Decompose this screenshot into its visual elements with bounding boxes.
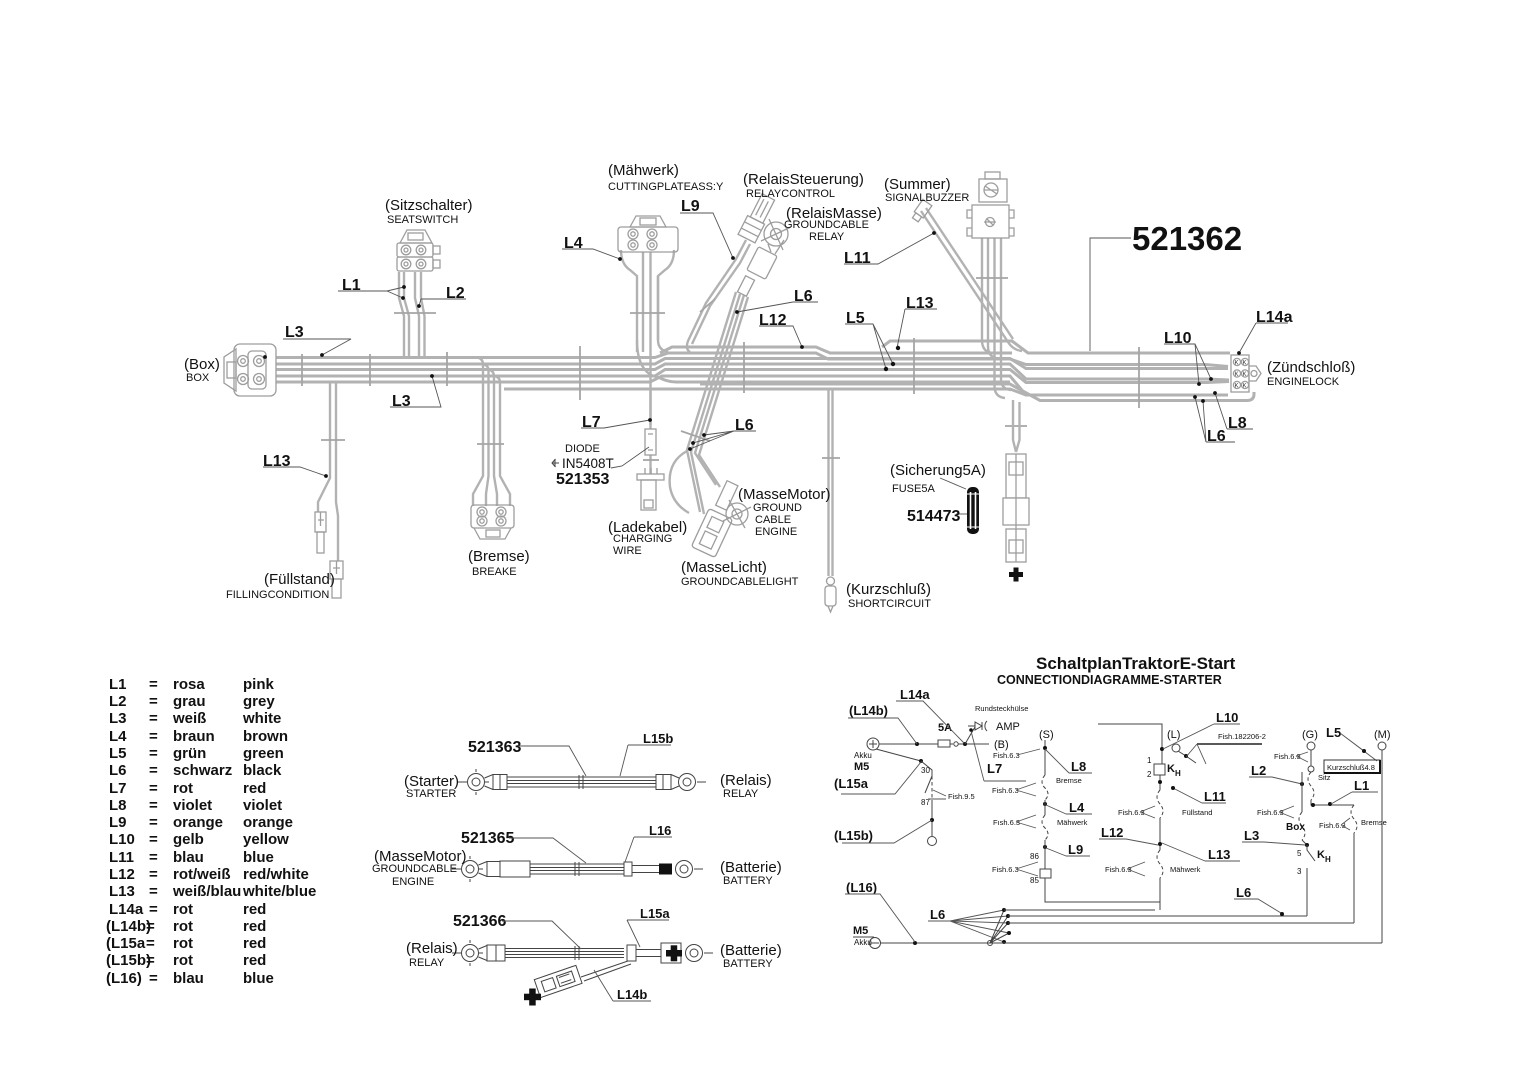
svg-text:Mähwerk: Mähwerk bbox=[1170, 865, 1201, 874]
svg-text:GROUND: GROUND bbox=[753, 502, 802, 514]
svg-text:521362: 521362 bbox=[1132, 220, 1242, 257]
svg-text:(Bremse): (Bremse) bbox=[468, 548, 530, 565]
svg-text:Kurzschluß4.8: Kurzschluß4.8 bbox=[1327, 763, 1375, 772]
svg-text:grey: grey bbox=[243, 693, 275, 710]
svg-text:(Sitzschalter): (Sitzschalter) bbox=[385, 197, 473, 214]
svg-text:(L15b): (L15b) bbox=[106, 952, 151, 969]
svg-text:514473: 514473 bbox=[907, 508, 960, 525]
svg-text:L12: L12 bbox=[1101, 825, 1123, 840]
svg-text:grün: grün bbox=[173, 745, 206, 762]
svg-text:Bremse: Bremse bbox=[1361, 818, 1387, 827]
svg-text:L14a: L14a bbox=[900, 687, 930, 702]
svg-text:(RelaisSteuerung): (RelaisSteuerung) bbox=[743, 171, 864, 188]
svg-text:L7: L7 bbox=[987, 761, 1002, 776]
svg-text:(L14b): (L14b) bbox=[106, 918, 151, 935]
svg-text:L11: L11 bbox=[1204, 789, 1226, 804]
svg-text:L6: L6 bbox=[1236, 885, 1251, 900]
svg-text:(Zündschloß): (Zündschloß) bbox=[1267, 359, 1355, 376]
svg-text:L13: L13 bbox=[906, 295, 934, 312]
svg-text:L11: L11 bbox=[844, 250, 871, 267]
svg-text:L13: L13 bbox=[263, 453, 291, 470]
svg-text:SchaltplanTraktorE-Start: SchaltplanTraktorE-Start bbox=[1036, 654, 1236, 673]
svg-text:blue: blue bbox=[243, 970, 274, 987]
svg-text:=: = bbox=[149, 831, 158, 848]
svg-text:(Relais): (Relais) bbox=[406, 940, 458, 957]
svg-text:L12: L12 bbox=[109, 866, 135, 883]
svg-text:RELAY: RELAY bbox=[409, 957, 445, 969]
svg-text:L5: L5 bbox=[846, 310, 865, 327]
svg-text:(L): (L) bbox=[1167, 729, 1180, 741]
svg-text:L7: L7 bbox=[109, 780, 127, 797]
svg-text:ENGINELOCK: ENGINELOCK bbox=[1267, 376, 1340, 388]
svg-text:K: K bbox=[1235, 384, 1239, 390]
svg-text:L4: L4 bbox=[109, 728, 127, 745]
svg-text:(Batterie): (Batterie) bbox=[720, 859, 782, 876]
svg-text:RELAY: RELAY bbox=[809, 231, 845, 243]
svg-text:=: = bbox=[149, 866, 158, 883]
svg-text:Fish.182206-2: Fish.182206-2 bbox=[1218, 732, 1266, 741]
svg-text:Fish.6.3: Fish.6.3 bbox=[992, 865, 1019, 874]
svg-text:WIRE: WIRE bbox=[613, 545, 642, 557]
svg-text:=: = bbox=[146, 952, 155, 969]
svg-text:L3: L3 bbox=[109, 710, 127, 727]
svg-text:schwarz: schwarz bbox=[173, 762, 232, 779]
svg-text:CONNECTIONDIAGRAMME-STARTER: CONNECTIONDIAGRAMME-STARTER bbox=[997, 673, 1222, 687]
svg-text:(S): (S) bbox=[1039, 729, 1054, 741]
svg-text:K: K bbox=[1235, 372, 1239, 378]
svg-text:SEATSWITCH: SEATSWITCH bbox=[387, 214, 458, 226]
svg-text:=: = bbox=[149, 814, 158, 831]
svg-text:rot: rot bbox=[173, 780, 193, 797]
svg-text:(Batterie): (Batterie) bbox=[720, 942, 782, 959]
svg-text:violet: violet bbox=[173, 797, 212, 814]
svg-text:L15a: L15a bbox=[640, 906, 670, 921]
svg-text:yellow: yellow bbox=[243, 831, 289, 848]
svg-text:5: 5 bbox=[1297, 849, 1302, 858]
svg-text:Fısh.6.3: Fısh.6.3 bbox=[993, 818, 1020, 827]
svg-text:white/blue: white/blue bbox=[242, 883, 316, 900]
svg-text:=: = bbox=[149, 762, 158, 779]
svg-text:=: = bbox=[149, 745, 158, 762]
svg-text:CUTTINGPLATEASS:Y: CUTTINGPLATEASS:Y bbox=[608, 181, 724, 193]
svg-text:(MasseMotor): (MasseMotor) bbox=[738, 486, 831, 503]
svg-text:=: = bbox=[146, 918, 155, 935]
svg-text:(Sicherung5A): (Sicherung5A) bbox=[890, 462, 986, 479]
svg-text:=: = bbox=[149, 849, 158, 866]
svg-text:rosa: rosa bbox=[173, 676, 205, 693]
svg-text:L5: L5 bbox=[1326, 725, 1341, 740]
svg-text:Füllstand: Füllstand bbox=[1182, 808, 1212, 817]
svg-text:CHARGING: CHARGING bbox=[613, 533, 672, 545]
svg-text:L3: L3 bbox=[1244, 828, 1259, 843]
svg-text:BATTERY: BATTERY bbox=[723, 875, 773, 887]
svg-text:L4: L4 bbox=[1069, 800, 1085, 815]
svg-text:L4: L4 bbox=[564, 235, 583, 252]
svg-text:L8: L8 bbox=[1071, 759, 1086, 774]
svg-text:=: = bbox=[149, 970, 158, 987]
svg-text:gelb: gelb bbox=[173, 831, 204, 848]
svg-text:SIGNALBUZZER: SIGNALBUZZER bbox=[885, 192, 969, 204]
svg-text:red: red bbox=[243, 780, 266, 797]
svg-text:red/white: red/white bbox=[243, 866, 309, 883]
svg-text:(Mähwerk): (Mähwerk) bbox=[608, 162, 679, 179]
svg-text:L5: L5 bbox=[109, 745, 127, 762]
svg-text:Rundsteckhülse: Rundsteckhülse bbox=[975, 704, 1028, 713]
svg-text:L14a: L14a bbox=[109, 901, 144, 918]
svg-text:Fish.6.3: Fish.6.3 bbox=[993, 751, 1020, 760]
svg-text:BREAKE: BREAKE bbox=[472, 566, 517, 578]
svg-text:violet: violet bbox=[243, 797, 282, 814]
svg-text:L9: L9 bbox=[109, 814, 127, 831]
svg-text:RELAY: RELAY bbox=[723, 788, 759, 800]
svg-text:L1: L1 bbox=[342, 277, 361, 294]
svg-text:L6: L6 bbox=[735, 417, 754, 434]
svg-text:L2: L2 bbox=[109, 693, 127, 710]
svg-text:(MasseLicht): (MasseLicht) bbox=[681, 559, 767, 576]
svg-text:30: 30 bbox=[921, 766, 930, 775]
svg-text:K: K bbox=[1235, 361, 1239, 367]
svg-text:GROUNDCABLELIGHT: GROUNDCABLELIGHT bbox=[681, 576, 799, 588]
svg-text:3: 3 bbox=[1297, 867, 1302, 876]
svg-text:M5: M5 bbox=[853, 925, 868, 937]
svg-text:L6: L6 bbox=[794, 288, 813, 305]
svg-text:BOX: BOX bbox=[186, 372, 210, 384]
svg-text:L10: L10 bbox=[1216, 710, 1238, 725]
svg-text:=: = bbox=[149, 883, 158, 900]
svg-text:L13: L13 bbox=[1208, 847, 1230, 862]
svg-text:red: red bbox=[243, 952, 266, 969]
svg-text:H: H bbox=[1325, 855, 1331, 864]
svg-text:CABLE: CABLE bbox=[755, 514, 791, 526]
svg-text:(G): (G) bbox=[1302, 729, 1318, 741]
svg-text:brown: brown bbox=[243, 728, 288, 745]
svg-text:L2: L2 bbox=[1251, 763, 1266, 778]
svg-text:(L15a: (L15a bbox=[106, 935, 146, 952]
svg-text:M5: M5 bbox=[854, 761, 869, 773]
svg-text:L6: L6 bbox=[1207, 428, 1226, 445]
svg-text:L8: L8 bbox=[1228, 415, 1247, 432]
svg-text:L7: L7 bbox=[582, 414, 601, 431]
svg-text:H: H bbox=[1175, 769, 1181, 778]
svg-text:rot: rot bbox=[173, 918, 193, 935]
svg-text:L3: L3 bbox=[285, 324, 304, 341]
svg-text:blau: blau bbox=[173, 970, 204, 987]
svg-text:ENGINE: ENGINE bbox=[755, 526, 797, 538]
svg-text:FUSE5A: FUSE5A bbox=[892, 483, 935, 495]
svg-text:L10: L10 bbox=[1164, 330, 1192, 347]
svg-text:521353: 521353 bbox=[556, 471, 609, 488]
svg-text:BATTERY: BATTERY bbox=[723, 958, 773, 970]
svg-text:braun: braun bbox=[173, 728, 215, 745]
svg-text:Mähwerk: Mähwerk bbox=[1057, 818, 1088, 827]
svg-text:=: = bbox=[149, 693, 158, 710]
svg-text:Fish.9.5: Fish.9.5 bbox=[948, 792, 975, 801]
svg-text:L8: L8 bbox=[109, 797, 127, 814]
svg-text:K: K bbox=[1317, 849, 1325, 861]
svg-text:(L16): (L16) bbox=[846, 880, 877, 895]
svg-text:L9: L9 bbox=[1068, 842, 1083, 857]
svg-text:green: green bbox=[243, 745, 284, 762]
svg-text:2: 2 bbox=[1147, 770, 1152, 779]
svg-text:K: K bbox=[1243, 361, 1247, 367]
svg-text:L15b: L15b bbox=[643, 731, 673, 746]
svg-text:red: red bbox=[243, 918, 266, 935]
svg-text:red: red bbox=[243, 935, 266, 952]
svg-text:(Relais): (Relais) bbox=[720, 772, 772, 789]
svg-text:DIODE: DIODE bbox=[565, 443, 600, 455]
svg-text:=: = bbox=[149, 780, 158, 797]
svg-text:orange: orange bbox=[173, 814, 223, 831]
svg-text:rot: rot bbox=[173, 935, 193, 952]
svg-text:GROUNDCABLE: GROUNDCABLE bbox=[784, 219, 869, 231]
svg-text:Akku: Akku bbox=[854, 938, 872, 947]
svg-text:=: = bbox=[149, 901, 158, 918]
svg-text:Fish.6.3: Fish.6.3 bbox=[992, 786, 1019, 795]
svg-text:STARTER: STARTER bbox=[406, 788, 456, 800]
svg-text:=: = bbox=[149, 676, 158, 693]
svg-text:Akku: Akku bbox=[854, 751, 872, 760]
svg-text:orange: orange bbox=[243, 814, 293, 831]
svg-text:Box: Box bbox=[1286, 822, 1305, 833]
svg-text:pink: pink bbox=[243, 676, 274, 693]
svg-text:blue: blue bbox=[243, 849, 274, 866]
svg-text:L1: L1 bbox=[109, 676, 127, 693]
svg-text:L12: L12 bbox=[759, 312, 787, 329]
svg-text:(Summer): (Summer) bbox=[884, 176, 951, 193]
svg-text:grau: grau bbox=[173, 693, 206, 710]
svg-text:IN5408T: IN5408T bbox=[562, 456, 614, 471]
svg-text:L13: L13 bbox=[109, 883, 135, 900]
svg-text:rot/weiß: rot/weiß bbox=[173, 866, 231, 883]
svg-text:(L16): (L16) bbox=[106, 970, 142, 987]
svg-text:black: black bbox=[243, 762, 282, 779]
svg-text:K: K bbox=[1243, 372, 1247, 378]
svg-text:weiß: weiß bbox=[172, 710, 206, 727]
svg-text:K: K bbox=[1167, 763, 1175, 775]
svg-text:(Box): (Box) bbox=[184, 356, 220, 373]
svg-text:(L15a: (L15a bbox=[834, 776, 869, 791]
svg-text:L11: L11 bbox=[109, 849, 134, 866]
svg-text:L14b: L14b bbox=[617, 987, 647, 1002]
svg-text:(B): (B) bbox=[994, 739, 1009, 751]
svg-text:85: 85 bbox=[1030, 876, 1039, 885]
svg-text:(Füllstand): (Füllstand) bbox=[264, 571, 335, 588]
svg-text:Bremse: Bremse bbox=[1056, 776, 1082, 785]
svg-text:white: white bbox=[242, 710, 281, 727]
svg-text:GROUNDCABLE: GROUNDCABLE bbox=[372, 863, 457, 875]
svg-text:blau: blau bbox=[173, 849, 204, 866]
svg-text:=: = bbox=[146, 935, 155, 952]
svg-text:weiß/blau: weiß/blau bbox=[172, 883, 241, 900]
svg-text:rot: rot bbox=[173, 952, 193, 969]
svg-text:521365: 521365 bbox=[461, 830, 514, 847]
svg-text:red: red bbox=[243, 901, 266, 918]
svg-text:L2: L2 bbox=[446, 285, 465, 302]
svg-text:SHORTCIRCUIT: SHORTCIRCUIT bbox=[848, 598, 931, 610]
svg-text:(Kurzschluß): (Kurzschluß) bbox=[846, 581, 931, 598]
svg-text:521366: 521366 bbox=[453, 913, 506, 930]
svg-text:=: = bbox=[149, 797, 158, 814]
svg-text:=: = bbox=[149, 710, 158, 727]
svg-text:521363: 521363 bbox=[468, 739, 521, 756]
svg-text:(M): (M) bbox=[1374, 729, 1391, 741]
svg-text:RELAYCONTROL: RELAYCONTROL bbox=[746, 188, 835, 200]
svg-text:Sitz: Sitz bbox=[1318, 773, 1331, 782]
svg-text:L14a: L14a bbox=[1256, 309, 1293, 326]
svg-text:(L15b): (L15b) bbox=[834, 828, 873, 843]
svg-text:ENGINE: ENGINE bbox=[392, 876, 434, 888]
svg-text:L6: L6 bbox=[109, 762, 127, 779]
svg-text:L10: L10 bbox=[109, 831, 135, 848]
svg-text:L9: L9 bbox=[681, 198, 700, 215]
svg-text:L1: L1 bbox=[1354, 778, 1369, 793]
svg-text:(L14b): (L14b) bbox=[849, 703, 888, 718]
svg-text:L16: L16 bbox=[649, 823, 671, 838]
svg-text:rot: rot bbox=[173, 901, 193, 918]
svg-text:1: 1 bbox=[1147, 756, 1152, 765]
svg-text:86: 86 bbox=[1030, 852, 1039, 861]
svg-text:FILLINGCONDITION: FILLINGCONDITION bbox=[226, 589, 329, 601]
svg-text:L3: L3 bbox=[392, 393, 411, 410]
svg-text:L6: L6 bbox=[930, 907, 945, 922]
svg-text:K: K bbox=[1243, 384, 1247, 390]
svg-text:=: = bbox=[149, 728, 158, 745]
svg-text:AMP: AMP bbox=[996, 721, 1020, 733]
